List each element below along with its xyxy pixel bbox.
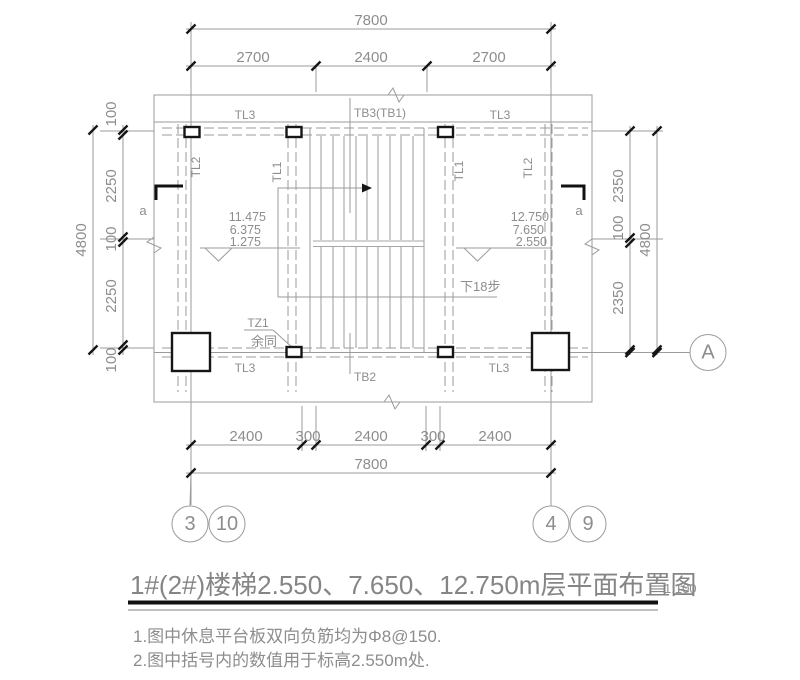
dim-left-seg3: 100 [103,226,120,251]
grid-bubble-a: A [701,342,715,364]
elevation-marker-left [200,248,300,261]
column-plate [438,347,453,357]
dim-bottom-seg1: 2400 [229,428,262,445]
dim-left-seg4: 2250 [103,279,120,312]
dim-top-seg1: 2700 [236,49,269,66]
dim-top-overall: 7800 [354,12,387,29]
stair-plan-drawing: 7800 2700 2400 2700 2400 300 2400 300 24… [0,0,800,680]
drawing-scale: 1:100 [664,581,697,596]
beam-label-tl1-left: TL1 [270,161,284,182]
column-plate-tz1 [287,347,302,357]
dim-bottom-seg3: 2400 [354,428,387,445]
beam-label-tl3-bottom-left: TL3 [235,361,256,375]
beam-label-tl2-right: TL2 [521,157,535,178]
elevation-left-3: 1.275 [230,235,261,249]
column-plate [438,127,453,137]
dim-right-seg2: 100 [610,215,627,240]
dim-bottom-overall: 7800 [354,456,387,473]
dim-left-seg5: 100 [103,347,120,372]
dim-top-seg2: 2400 [354,49,387,66]
grid-bubble-4: 4 [545,513,556,535]
drawing-title: 1#(2#)楼梯2.550、7.650、12.750m层平面布置图 [130,570,696,600]
note-line-1: 1.图中休息平台板双向负筋均为Φ8@150. [133,627,442,646]
beam-label-tl3-top-left: TL3 [235,108,256,122]
column-plate [185,127,200,137]
stair-down-note: 下18步 [460,279,500,294]
corner-column-left [172,333,210,371]
column-plate [287,127,302,137]
dim-bottom-seg5: 2400 [478,428,511,445]
dim-right-seg3: 2350 [610,281,627,314]
dim-left-overall: 4800 [73,223,90,256]
section-letter-right: a [575,203,583,218]
beam-label-tl1-right: TL1 [452,160,466,181]
column-label-tz1: TZ1 [247,316,269,330]
dim-bottom-seg4: 300 [420,428,445,445]
beam-label-tl3-top-right: TL3 [490,108,511,122]
dim-left-seg1: 100 [103,101,120,126]
elevation-right-3: 2.550 [516,235,547,249]
dim-bottom-seg2: 300 [295,428,320,445]
grid-bubble-9: 9 [582,513,593,535]
slab-label-tb2: TB2 [354,370,376,384]
grid-bubble-3: 3 [184,513,195,535]
elevation-left-1: 11.475 [229,210,266,224]
section-mark-right [561,186,584,200]
corner-column-right [532,333,569,370]
section-mark-left [156,186,183,200]
elevation-marker-right [456,248,552,261]
slab-label-tb3: TB3(TB1) [354,106,406,120]
beam-label-tl3-bottom-right: TL3 [489,361,510,375]
dim-top-seg3: 2700 [472,49,505,66]
dimension-ticks [89,25,662,478]
column-note-yutong: 余同 [251,334,277,349]
note-line-2: 2.图中括号内的数值用于标高2.550m处. [133,651,430,670]
beam-label-tl2-left: TL2 [189,156,203,177]
elevation-right-1: 12.750 [511,210,549,224]
dim-right-seg1: 2350 [610,169,627,202]
cad-canvas: 7800 2700 2400 2700 2400 300 2400 300 24… [0,0,800,680]
section-letter-left: a [139,203,147,218]
dim-right-overall: 4800 [637,223,654,256]
dim-left-seg2: 2250 [103,169,120,202]
grid-bubble-10: 10 [216,513,238,535]
